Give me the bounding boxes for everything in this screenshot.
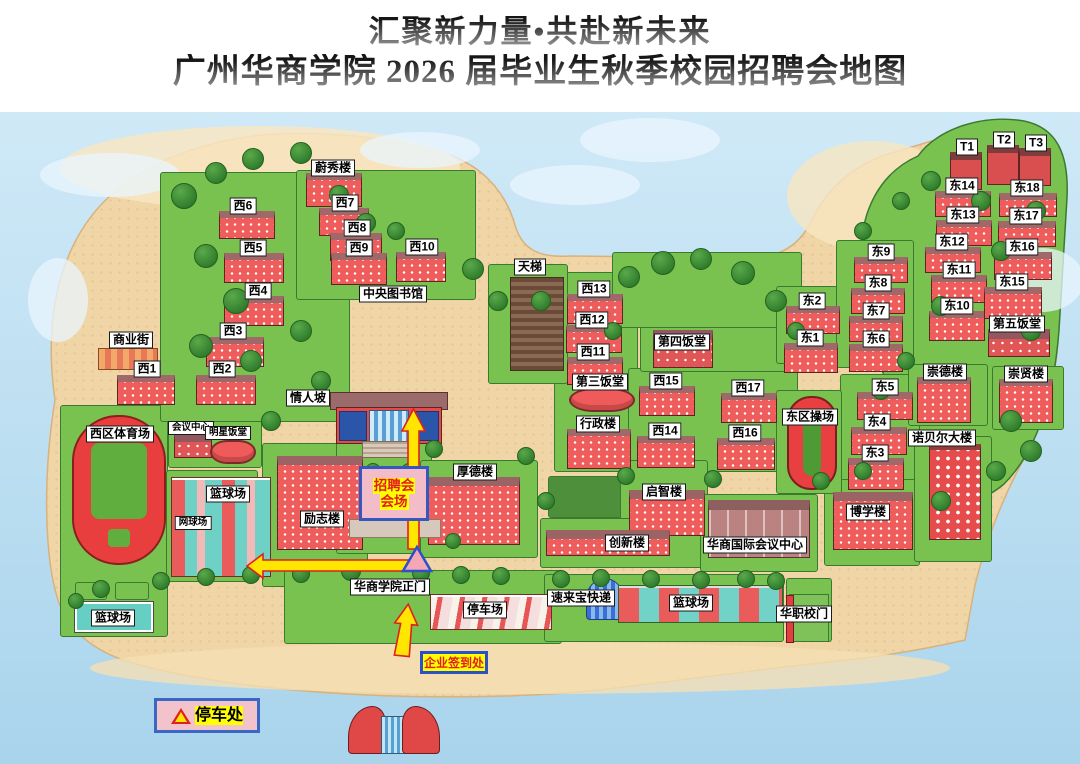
map-label-第三饭堂: 第三饭堂 <box>572 374 628 391</box>
building-西9 <box>331 253 387 285</box>
tree-icon <box>205 162 227 184</box>
map-label-西区体育场: 西区体育场 <box>86 426 154 443</box>
cloud <box>28 258 88 342</box>
cloud <box>580 118 720 162</box>
building-西15 <box>639 386 695 416</box>
map-label-天梯: 天梯 <box>514 259 546 276</box>
map-label-情人坡: 情人坡 <box>286 390 330 407</box>
signin-label: 企业签到处 <box>424 654 484 671</box>
job-fair-venue-box: 招聘会 会场 <box>359 466 429 521</box>
building-东15 <box>984 287 1042 319</box>
tree-icon <box>240 350 262 372</box>
map-label-东16: 东16 <box>1005 239 1038 256</box>
tree-icon <box>242 566 260 584</box>
title-block: 汇聚新力量•共赴新未来 广州华商学院 2026 届毕业生秋季校园招聘会地图 <box>0 0 1080 112</box>
tree-icon <box>537 492 555 510</box>
lawn <box>548 476 622 518</box>
job-fair-campus-map-page: 汇聚新力量•共赴新未来 广州华商学院 2026 届毕业生秋季校园招聘会地图 商业… <box>0 0 1080 764</box>
title-slogan: 汇聚新力量•共赴新未来 <box>0 14 1080 50</box>
map-label-崇贤楼: 崇贤楼 <box>1004 366 1048 383</box>
map-label-崇德楼: 崇德楼 <box>923 364 967 381</box>
building-厚德楼 <box>428 477 520 545</box>
map-label-东3: 东3 <box>862 445 889 462</box>
tree-icon <box>552 570 570 588</box>
map-label-网球场: 网球场 <box>175 516 212 530</box>
map-label-东5: 东5 <box>872 379 899 396</box>
tree-icon <box>704 470 722 488</box>
tree-icon <box>854 462 872 480</box>
map-label-T1: T1 <box>956 139 978 156</box>
campus-map: 商业街西1西2西3西4西5西6蔚秀楼西7西8西9西10中央图书馆天梯情人坡西13… <box>0 110 1080 764</box>
map-label-第四饭堂: 第四饭堂 <box>654 334 710 351</box>
building-西6 <box>219 211 275 239</box>
map-label-速来宝快递: 速来宝快递 <box>547 590 615 607</box>
tree-icon <box>197 568 215 586</box>
building-西1 <box>117 375 175 405</box>
tree-icon <box>462 258 484 280</box>
map-label-篮球场: 篮球场 <box>91 610 135 627</box>
tree-icon <box>194 244 218 268</box>
building-西16 <box>717 438 775 470</box>
tree-icon <box>931 491 951 511</box>
map-label-博学楼: 博学楼 <box>846 504 890 521</box>
tree-icon <box>812 472 830 490</box>
map-label-东6: 东6 <box>863 331 890 348</box>
tree-icon <box>290 320 312 342</box>
map-label-西6: 西6 <box>230 198 257 215</box>
lawn <box>115 582 149 600</box>
map-label-东8: 东8 <box>865 275 892 292</box>
map-label-T3: T3 <box>1025 135 1047 152</box>
tree-icon <box>1000 410 1022 432</box>
map-label-东9: 东9 <box>868 244 895 261</box>
tree-icon <box>897 352 915 370</box>
library-glass-left <box>339 411 367 441</box>
library-steps <box>362 441 416 458</box>
tree-icon <box>731 261 755 285</box>
tree-icon <box>767 572 785 590</box>
building-第三饭堂 <box>569 388 635 412</box>
map-label-西3: 西3 <box>220 323 247 340</box>
tree-icon <box>517 447 535 465</box>
tree-icon <box>651 251 675 275</box>
tree-icon <box>68 593 84 609</box>
tree-icon <box>290 142 312 164</box>
cloud <box>360 132 480 168</box>
venue-label-line1: 招聘会 <box>373 478 416 494</box>
warning-triangle-icon <box>171 708 191 724</box>
map-label-东12: 东12 <box>935 234 968 251</box>
tree-icon <box>387 222 405 240</box>
tree-icon <box>425 440 443 458</box>
map-label-东4: 东4 <box>864 414 891 431</box>
map-label-T2: T2 <box>993 132 1015 149</box>
tree-icon <box>737 570 755 588</box>
map-label-东18: 东18 <box>1010 180 1043 197</box>
map-label-东14: 东14 <box>945 178 978 195</box>
main-gate <box>348 702 440 754</box>
map-label-第五饭堂: 第五饭堂 <box>989 316 1045 333</box>
parking-spot-box: 停车处 <box>154 698 260 733</box>
tree-icon <box>986 461 1006 481</box>
cloud <box>40 153 180 197</box>
tree-icon <box>189 334 213 358</box>
tree-icon <box>445 533 461 549</box>
map-label-西11: 西11 <box>577 344 610 361</box>
map-label-西17: 西17 <box>731 380 764 397</box>
map-label-停车场: 停车场 <box>463 602 507 619</box>
map-label-西12: 西12 <box>575 312 608 329</box>
main-gate-doors <box>381 716 409 754</box>
building-博学楼 <box>833 492 913 550</box>
tree-icon <box>261 411 281 431</box>
map-label-西15: 西15 <box>649 373 682 390</box>
map-label-西14: 西14 <box>648 423 681 440</box>
map-label-篮球场: 篮球场 <box>206 486 250 503</box>
map-label-华职校门: 华职校门 <box>776 606 832 623</box>
tree-icon <box>690 248 712 270</box>
map-label-华商学院正门: 华商学院正门 <box>350 579 430 596</box>
library-entrance <box>369 410 409 443</box>
building-崇德楼 <box>917 377 971 423</box>
map-label-行政楼: 行政楼 <box>576 416 620 433</box>
map-label-东区操场: 东区操场 <box>782 409 838 426</box>
map-label-商业街: 商业街 <box>109 332 153 349</box>
map-label-励志楼: 励志楼 <box>300 511 344 528</box>
venue-stage <box>349 519 441 538</box>
map-label-东15: 东15 <box>995 274 1028 291</box>
map-label-东1: 东1 <box>797 330 824 347</box>
parking-spot-label: 停车处 <box>195 706 243 725</box>
tree-icon <box>92 580 110 598</box>
tree-icon <box>171 183 197 209</box>
tree-icon <box>618 266 640 288</box>
map-label-创新楼: 创新楼 <box>605 535 649 552</box>
map-label-启智楼: 启智楼 <box>642 484 686 501</box>
map-label-东13: 东13 <box>946 207 979 224</box>
map-label-西5: 西5 <box>240 240 267 257</box>
building-西10 <box>396 252 446 282</box>
map-label-西16: 西16 <box>728 425 761 442</box>
map-label-东11: 东11 <box>943 262 976 279</box>
map-label-西7: 西7 <box>332 195 359 212</box>
map-label-东2: 东2 <box>799 293 826 310</box>
map-label-西4: 西4 <box>245 283 272 300</box>
tree-icon <box>292 565 310 583</box>
tree-icon <box>488 291 508 311</box>
map-label-西2: 西2 <box>209 361 236 378</box>
tree-icon <box>531 291 551 311</box>
tree-icon <box>617 467 635 485</box>
building-东1 <box>784 343 838 373</box>
library-body <box>336 407 442 444</box>
map-label-东7: 东7 <box>863 303 890 320</box>
map-label-西8: 西8 <box>344 220 371 237</box>
tree-icon <box>492 567 510 585</box>
page-title: 广州华商学院 2026 届毕业生秋季校园招聘会地图 <box>0 54 1080 92</box>
map-label-西1: 西1 <box>134 361 161 378</box>
tree-icon <box>311 371 331 391</box>
building-明星饭堂 <box>210 440 256 464</box>
company-signin-box: 企业签到处 <box>420 651 488 674</box>
map-label-西9: 西9 <box>346 240 373 257</box>
tree-icon <box>592 569 610 587</box>
map-label-华商国际会议中心: 华商国际会议中心 <box>703 537 807 554</box>
tree-icon <box>765 290 787 312</box>
tree-icon <box>452 566 470 584</box>
map-label-篮球场: 篮球场 <box>669 595 713 612</box>
tree-icon <box>921 171 941 191</box>
tree-icon <box>854 222 872 240</box>
map-label-蔚秀楼: 蔚秀楼 <box>311 160 355 177</box>
map-label-东10: 东10 <box>940 298 973 315</box>
beach-south <box>90 642 950 694</box>
map-label-西13: 西13 <box>577 281 610 298</box>
cloud <box>510 165 640 205</box>
venue-label-line2: 会场 <box>380 494 409 510</box>
map-label-诺贝尔大楼: 诺贝尔大楼 <box>908 430 976 447</box>
map-label-明星饭堂: 明星饭堂 <box>205 426 251 440</box>
building-东6 <box>849 344 903 372</box>
building-西17 <box>721 393 777 423</box>
building-西14 <box>637 436 695 468</box>
building-西5 <box>224 253 284 283</box>
tree-icon <box>892 192 910 210</box>
tree-icon <box>642 570 660 588</box>
map-label-东17: 东17 <box>1009 208 1042 225</box>
building-西2 <box>196 375 256 405</box>
tree-icon <box>692 571 710 589</box>
tree-icon <box>242 148 264 170</box>
tree-icon <box>152 572 170 590</box>
tree-icon <box>1020 440 1042 462</box>
library-glass-right <box>411 411 439 441</box>
map-label-中央图书馆: 中央图书馆 <box>359 286 427 303</box>
building-行政楼 <box>567 429 631 469</box>
map-label-厚德楼: 厚德楼 <box>453 464 497 481</box>
map-label-西10: 西10 <box>405 239 438 256</box>
